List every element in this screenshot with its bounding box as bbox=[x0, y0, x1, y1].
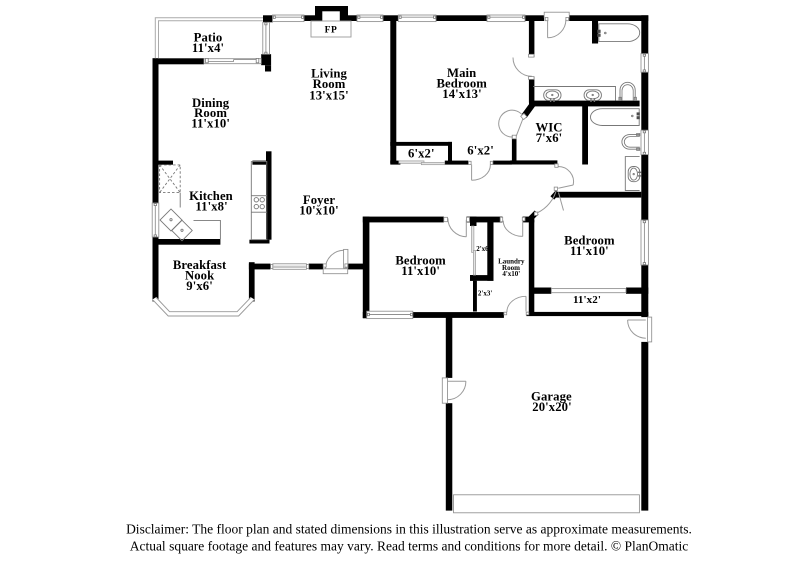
svg-text:11'x10': 11'x10' bbox=[191, 116, 230, 130]
svg-text:4'x10': 4'x10' bbox=[502, 270, 520, 278]
svg-text:2'x6': 2'x6' bbox=[476, 245, 490, 253]
svg-text:Disclaimer: The floor plan and: Disclaimer: The floor plan and stated di… bbox=[126, 522, 692, 537]
svg-text:10'x10': 10'x10' bbox=[299, 203, 338, 217]
svg-text:13'x15': 13'x15' bbox=[309, 88, 348, 102]
svg-text:9'x6': 9'x6' bbox=[186, 279, 213, 293]
svg-text:11'x4': 11'x4' bbox=[192, 41, 224, 55]
svg-text:7'x6': 7'x6' bbox=[536, 131, 563, 145]
svg-text:FP: FP bbox=[325, 26, 338, 36]
svg-text:14'x13': 14'x13' bbox=[442, 87, 481, 101]
svg-text:20'x20': 20'x20' bbox=[532, 400, 571, 414]
svg-text:2'x3': 2'x3' bbox=[478, 289, 492, 297]
svg-text:11'x2': 11'x2' bbox=[573, 294, 601, 306]
svg-text:11'x8': 11'x8' bbox=[195, 200, 227, 214]
svg-text:Actual square footage and feat: Actual square footage and features may v… bbox=[130, 539, 689, 554]
svg-text:11'x10': 11'x10' bbox=[401, 264, 440, 278]
svg-text:11'x10': 11'x10' bbox=[570, 244, 609, 258]
svg-text:6'x2': 6'x2' bbox=[408, 147, 435, 161]
svg-text:6'x2': 6'x2' bbox=[467, 144, 494, 158]
